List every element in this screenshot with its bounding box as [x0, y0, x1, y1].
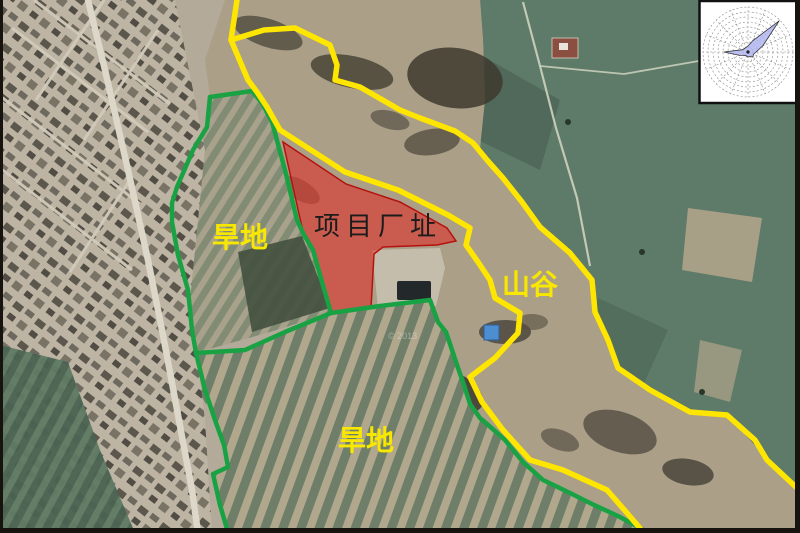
wind-rose-center-dot	[746, 50, 749, 53]
satellite-map: © 2013 旱地 项目厂址 山谷 旱地	[0, 0, 800, 533]
field-tree	[639, 249, 645, 255]
wind-rose-inset	[700, 1, 797, 103]
label-valley: 山谷	[502, 269, 559, 300]
label-dry-land-lower: 旱地	[338, 425, 394, 456]
farm-building-roof	[559, 43, 568, 50]
dark-pond	[397, 281, 431, 300]
imagery-watermark: © 2013	[388, 331, 417, 341]
field-tree	[699, 389, 705, 395]
ne-field-tan-patch	[682, 208, 762, 282]
label-dry-land-upper: 旱地	[212, 222, 268, 253]
field-tree	[565, 119, 571, 125]
label-project-site: 项目厂址	[314, 211, 442, 241]
satellite-basemap: © 2013 旱地 项目厂址 山谷 旱地	[0, 0, 800, 533]
blue-pond	[484, 325, 499, 340]
